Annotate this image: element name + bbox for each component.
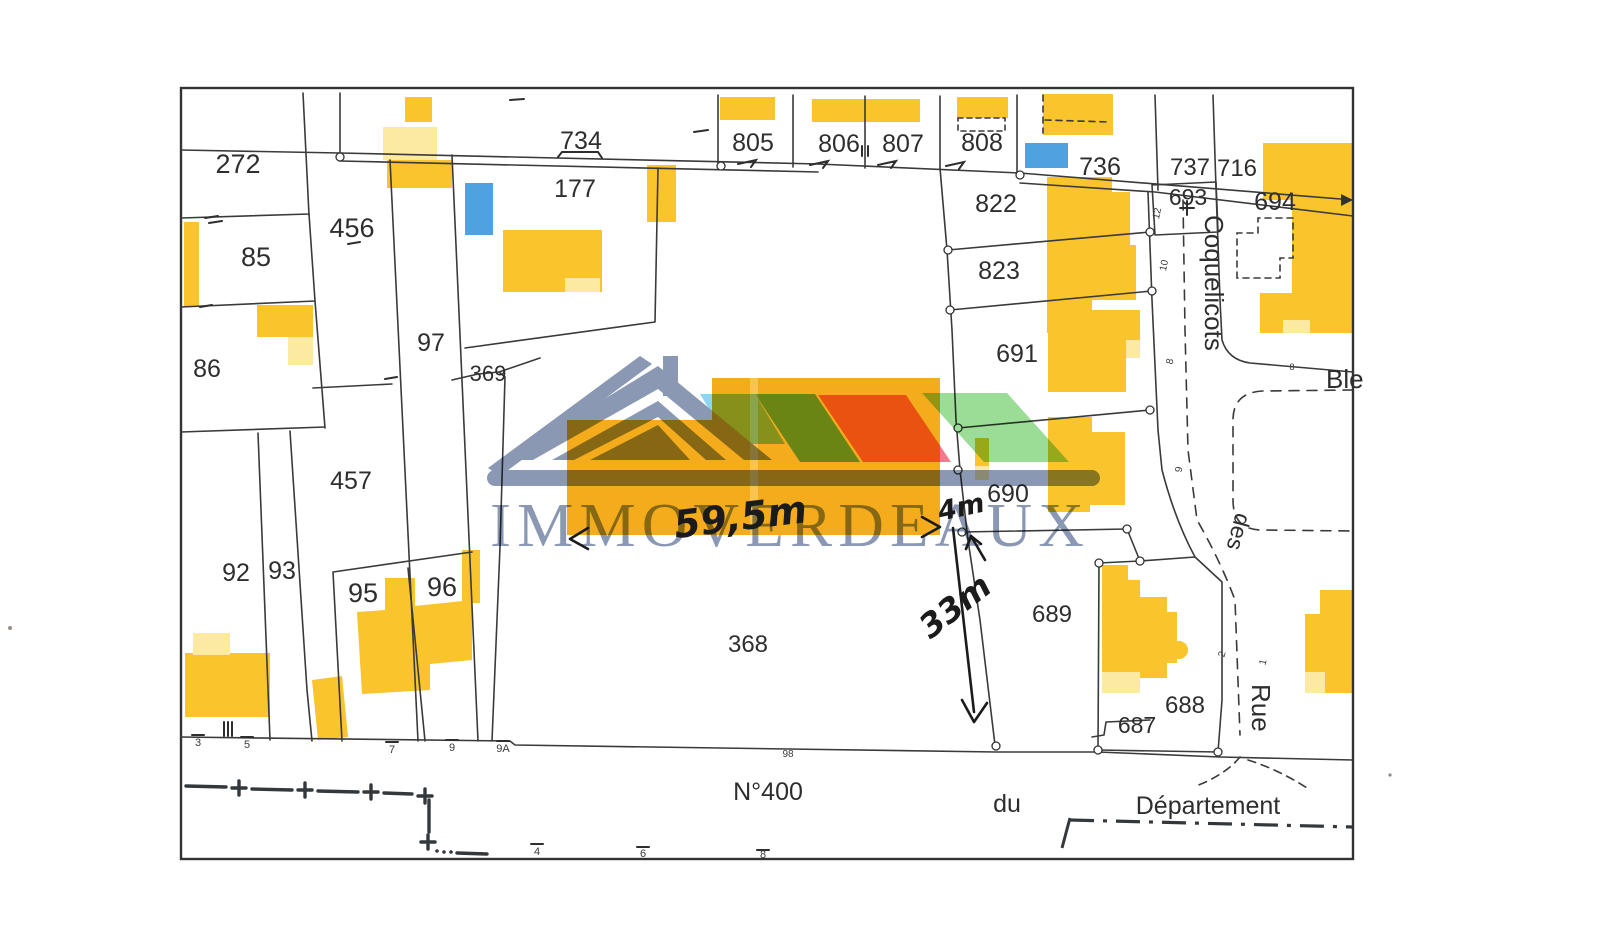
parcel-805: 805 [732, 129, 774, 157]
logo-chimney [663, 356, 678, 396]
house-number-9a: 9A [496, 743, 510, 755]
parcel-272: 272 [215, 149, 260, 179]
parcel-806: 806 [818, 130, 860, 158]
house-number-9: 9 [449, 742, 455, 754]
street-coquelicots: Coquelicots [1199, 215, 1229, 351]
street-n400: N°400 [733, 778, 803, 806]
parcel-822: 822 [975, 190, 1017, 218]
parcel-694: 694 [1254, 188, 1296, 216]
parcel-687: 687 [1118, 712, 1156, 738]
parcel-693: 693 [1169, 184, 1207, 210]
parcel-823: 823 [978, 257, 1020, 285]
parcel-734: 734 [560, 127, 602, 155]
blue-building [1025, 143, 1068, 168]
house-number-98: 98 [782, 749, 794, 760]
scan-speck [8, 626, 12, 630]
house-number-7: 7 [389, 744, 395, 756]
street-du: du [993, 790, 1021, 818]
logo-bar [487, 470, 1100, 486]
house-number-4: 4 [534, 846, 540, 858]
house-number-8: 8 [760, 849, 766, 861]
parcel-86: 86 [193, 355, 221, 383]
house-number-5: 5 [244, 739, 250, 751]
parcel-691: 691 [996, 340, 1038, 368]
parcel-97: 97 [417, 329, 445, 357]
parcel-457: 457 [330, 467, 372, 495]
parcel-369: 369 [470, 361, 507, 386]
scan-speck [1388, 773, 1391, 776]
street-ble: Ble [1326, 364, 1364, 394]
parcel-456: 456 [329, 213, 374, 243]
parcel-92: 92 [222, 559, 250, 587]
parcel-807: 807 [882, 130, 924, 158]
house-number-6: 6 [640, 848, 646, 860]
blue-building [465, 183, 493, 235]
house-number-3: 3 [195, 737, 201, 749]
parcel-95: 95 [348, 578, 378, 608]
street-rue: Rue [1246, 684, 1276, 732]
parcel-177: 177 [554, 175, 596, 203]
parcel-93: 93 [268, 557, 296, 585]
house-number-8: 8 [1289, 362, 1294, 372]
parcel-96: 96 [427, 572, 457, 602]
parcel-716: 716 [1217, 155, 1257, 182]
parcel-808: 808 [961, 129, 1003, 157]
parcel-368: 368 [728, 631, 768, 658]
parcel-688: 688 [1165, 692, 1205, 719]
street-dpartement: Département [1136, 792, 1281, 820]
parcel-737: 737 [1170, 154, 1210, 181]
parcel-736: 736 [1079, 153, 1121, 181]
cadastral-map: 2728586456974579293959636917773480580680… [0, 0, 1600, 946]
parcel-689: 689 [1032, 601, 1072, 628]
scanned-cadastral-page: 2728586456974579293959636917773480580680… [0, 0, 1600, 946]
parcel-85: 85 [241, 242, 271, 272]
